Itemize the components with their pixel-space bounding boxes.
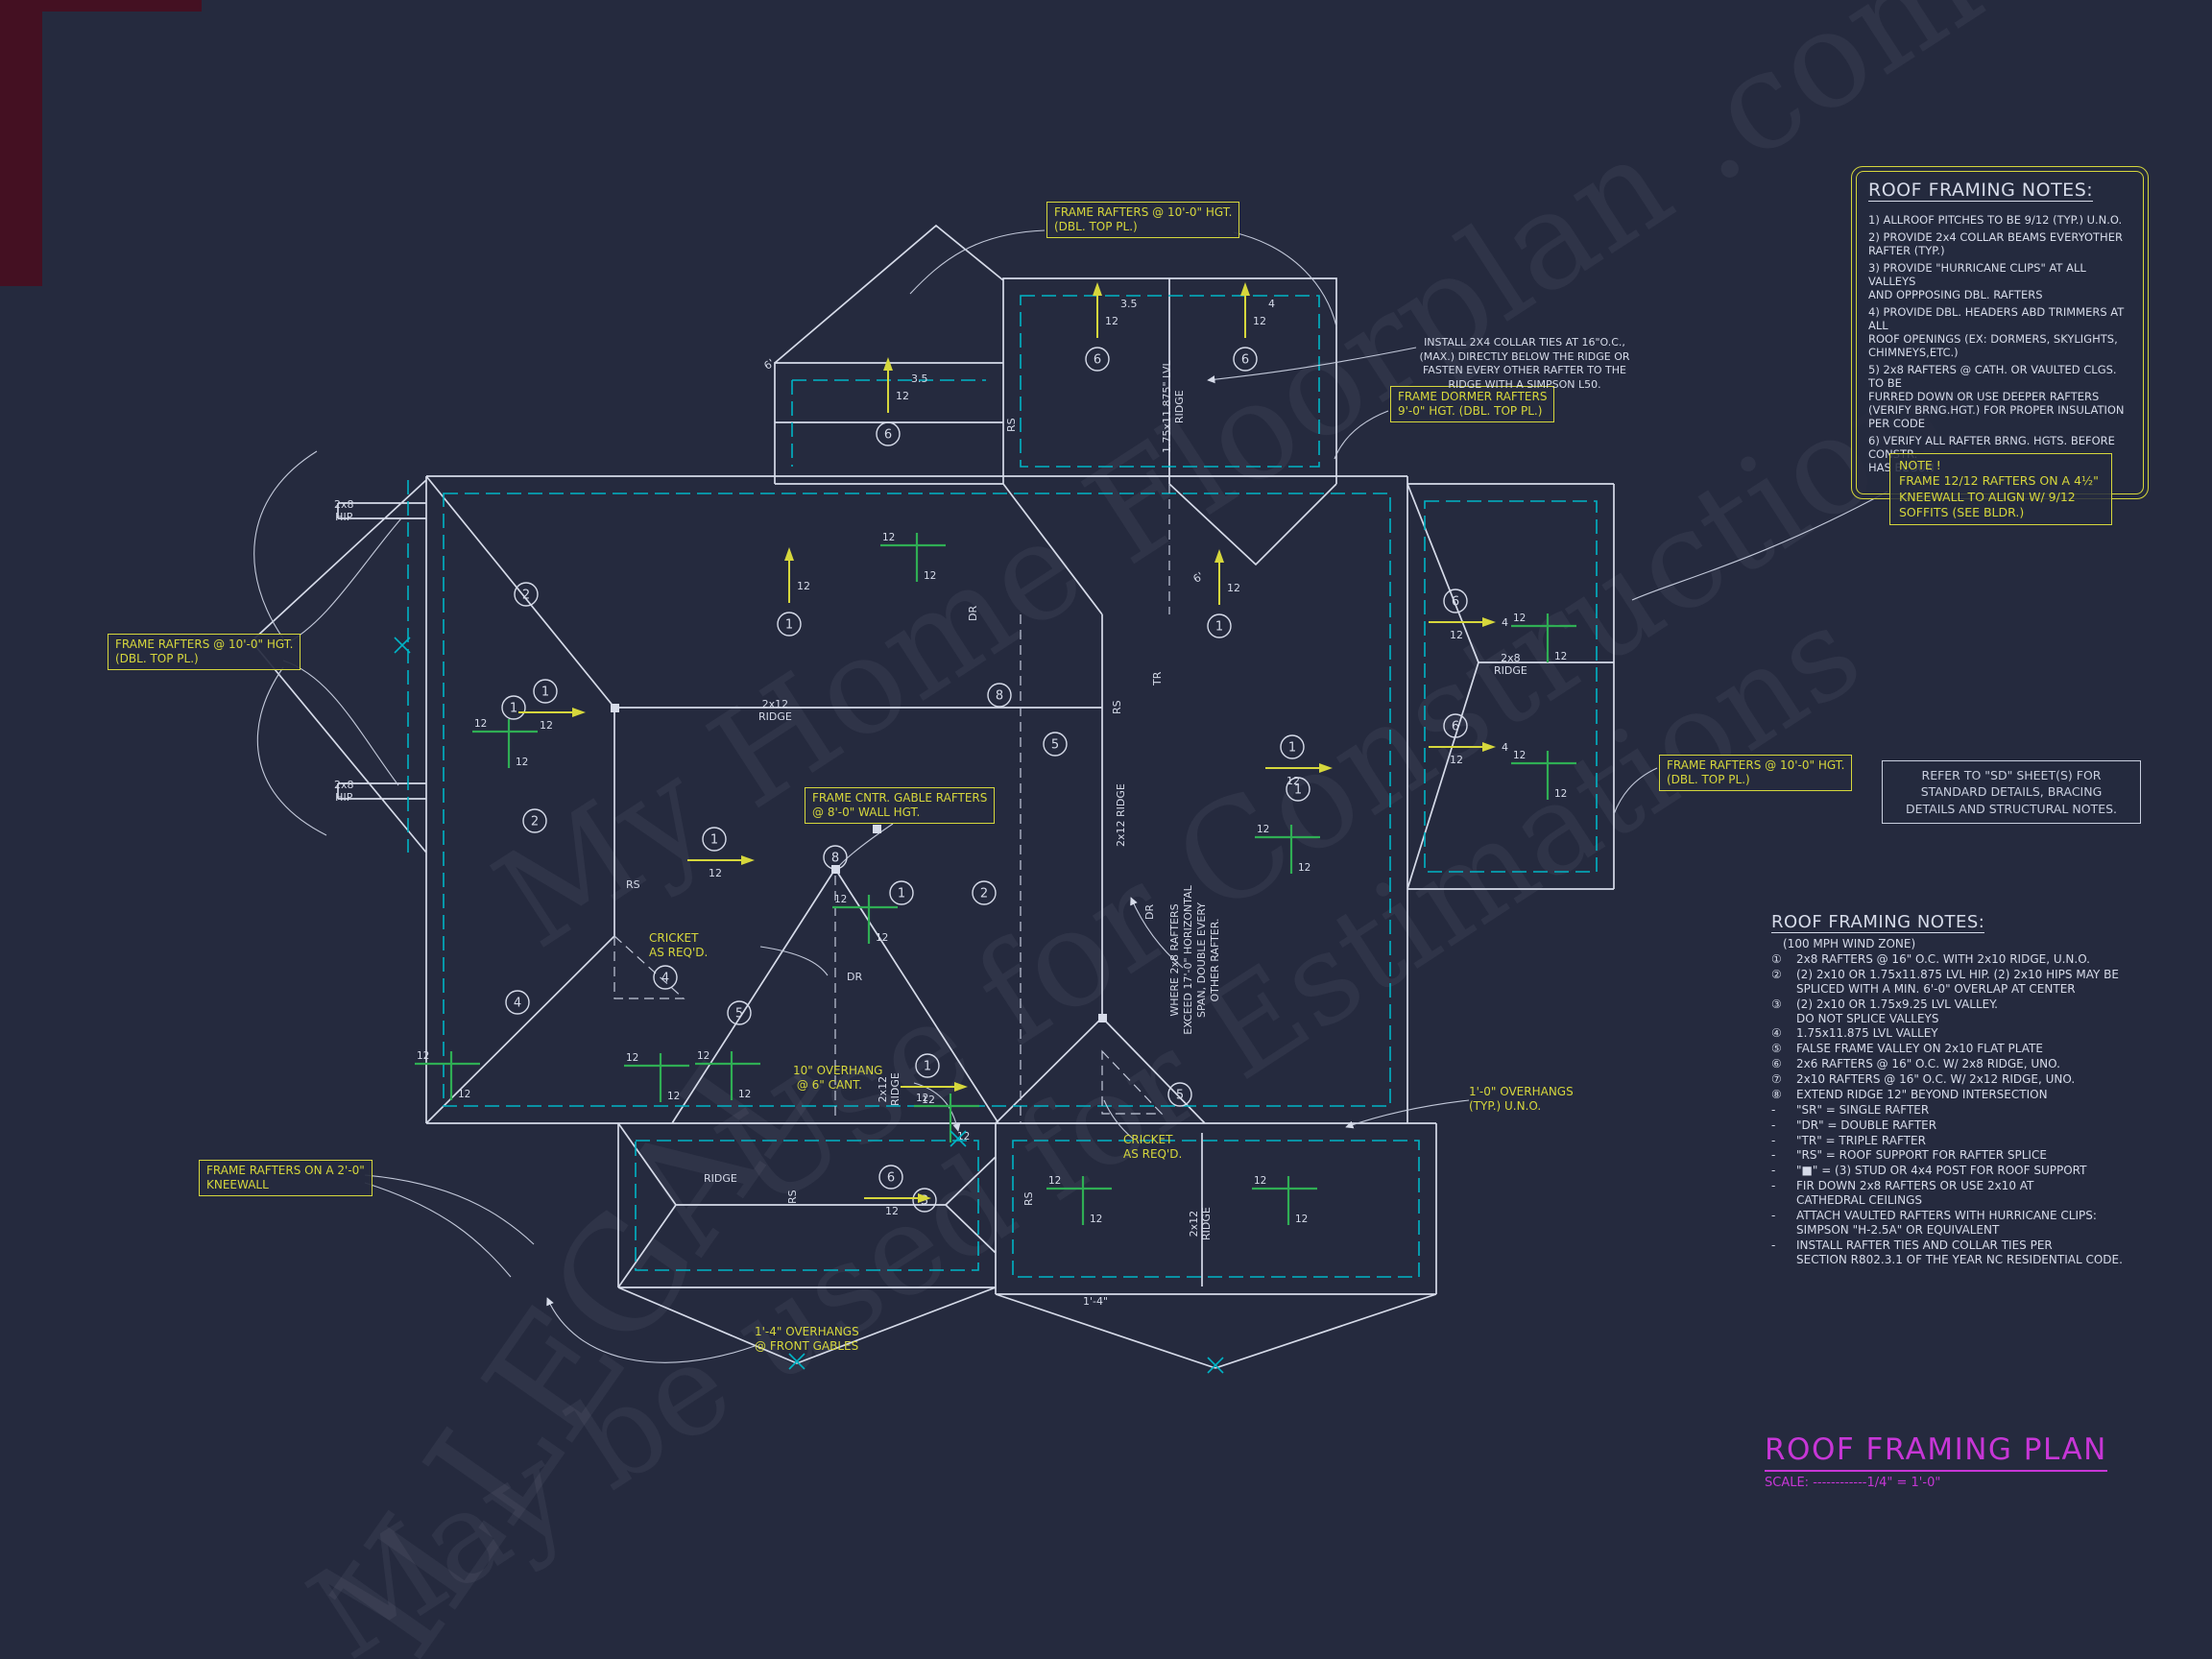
pitch-label: 3.5 — [911, 373, 928, 385]
callout-number: 1 — [785, 618, 793, 633]
title-block: ROOF FRAMING PLAN SCALE: ------------1/4… — [1765, 1432, 2107, 1490]
roof-framing-note: 3) PROVIDE "HURRICANE CLIPS" AT ALL VALL… — [1868, 261, 2131, 301]
pitch-cross-label: 12 — [1554, 788, 1567, 800]
pitch-arrowhead — [954, 1082, 968, 1092]
callout-number: 4 — [514, 997, 521, 1011]
framing-note-text: "DR" = DOUBLE RAFTER — [1796, 1118, 1936, 1133]
roof-framing-note: 2) PROVIDE 2x4 COLLAR BEAMS EVERYOTHER R… — [1868, 230, 2131, 257]
roof-framing-note: 5) 2x8 RAFTERS @ CATH. OR VAULTED CLGS. … — [1868, 363, 2131, 430]
framing-note-bullet: - — [1771, 1164, 1796, 1178]
frame-rafters-right-label: FRAME RAFTERS @ 10'-0" HGT. (DBL. TOP PL… — [1659, 755, 1852, 791]
pitch-cross-label: 12 — [458, 1089, 470, 1100]
plan-annotation: RS — [626, 879, 640, 892]
pitch-label: 4 — [1502, 741, 1508, 754]
install-collar-ties-note: INSTALL 2X4 COLLAR TIES AT 16"O.C., (MAX… — [1394, 336, 1655, 392]
callout-number: 4 — [661, 972, 669, 986]
framing-note-text: "RS" = ROOF SUPPORT FOR RAFTER SPLICE — [1796, 1148, 2047, 1163]
callout-number: 2 — [531, 815, 539, 829]
pitch-cross-label: 12 — [667, 1091, 680, 1102]
framing-note-text: EXTEND RIDGE 12" BEYOND INTERSECTION — [1796, 1088, 2048, 1102]
framing-note-row: -ATTACH VAULTED RAFTERS WITH HURRICANE C… — [1771, 1209, 2184, 1238]
framing-note-bullet: - — [1771, 1103, 1796, 1118]
framing-note-row: -"DR" = DOUBLE RAFTER — [1771, 1118, 2184, 1133]
cricket-1-label: CRICKET AS REQ'D. — [649, 931, 708, 960]
plan-annotation: RS — [1023, 1191, 1036, 1206]
pitch-cross-label: 12 — [1513, 613, 1526, 624]
plan-annotation: DR — [847, 972, 862, 984]
callout-number: 2 — [980, 887, 988, 902]
framing-note-text: (2) 2x10 OR 1.75x11.875 LVL HIP. (2) 2x1… — [1796, 968, 2119, 997]
frame-rafters-kneewall-label: FRAME RAFTERS ON A 2'-0" KNEEWALL — [199, 1160, 373, 1196]
framing-note-row: -"TR" = TRIPLE RAFTER — [1771, 1134, 2184, 1148]
callout-number: 1 — [924, 1060, 931, 1074]
callout-number: 5 — [735, 1007, 743, 1022]
pitch-cross-label: 12 — [738, 1089, 751, 1100]
callout-number: 6 — [1452, 595, 1459, 610]
note1-box: NOTE ! FRAME 12/12 RAFTERS ON A 4½" KNEE… — [1889, 453, 2112, 525]
callout-number: 2 — [522, 589, 530, 603]
framing-note-bullet: ② — [1771, 968, 1796, 997]
pitch-label: 4 — [1502, 616, 1508, 629]
pitch-cross-label: 12 — [1254, 1175, 1266, 1187]
overhang-1-4-label: 1'-4" OVERHANGS @ FRONT GABLES — [755, 1325, 859, 1354]
framing-note-bullet: - — [1771, 1209, 1796, 1238]
pitch-cross-label: 12 — [474, 718, 487, 730]
framing-note-row: -"SR" = SINGLE RAFTER — [1771, 1103, 2184, 1118]
cricket-2-label: CRICKET AS REQ'D. — [1123, 1133, 1182, 1162]
framing-note-bullet: ⑥ — [1771, 1057, 1796, 1071]
overhang-wall-lines — [408, 296, 1597, 1277]
callout-number: 6 — [1241, 353, 1249, 368]
plan-annotation: DR — [1144, 904, 1157, 920]
framing-note-bullet: - — [1771, 1134, 1796, 1148]
leader-install-note — [1208, 348, 1416, 380]
plan-annotation: TR — [1152, 672, 1165, 685]
plan-annotation: 2x12 RIDGE — [1189, 1207, 1213, 1240]
framing-note-row: -FIR DOWN 2x8 RAFTERS OR USE 2x10 AT CAT… — [1771, 1179, 2184, 1208]
pitch-label: 12 — [1286, 775, 1300, 787]
plan-annotation: 1'-4" — [1083, 1296, 1108, 1309]
framing-note-text: ATTACH VAULTED RAFTERS WITH HURRICANE CL… — [1796, 1209, 2097, 1238]
callout-number: 5 — [1176, 1089, 1184, 1103]
framing-note-text: (2) 2x10 OR 1.75x9.25 LVL VALLEY. DO NOT… — [1796, 998, 1998, 1026]
pitch-cross-label: 12 — [1554, 651, 1567, 662]
callout-number: 1 — [898, 887, 905, 902]
sheet-scale: SCALE: ------------1/4" = 1'-0" — [1765, 1476, 2107, 1490]
callout-number: 6 — [884, 428, 892, 443]
roof-framing-note: 1) ALLROOF PITCHES TO BE 9/12 (TYP.) U.N… — [1868, 213, 2131, 227]
callout-number: 6 — [1452, 720, 1459, 734]
overhang-1-0-label: 1'-0" OVERHANGS (TYP.) U.N.O. — [1469, 1085, 1574, 1114]
pitch-arrowhead — [572, 708, 586, 717]
callout-number: 1 — [510, 702, 517, 716]
callout-number: 5 — [1051, 738, 1059, 753]
roof-framing-note: 4) PROVIDE DBL. HEADERS ABD TRIMMERS AT … — [1868, 305, 2131, 359]
framing-note-row: -"■" = (3) STUD OR 4x4 POST FOR ROOF SUP… — [1771, 1164, 2184, 1178]
plan-annotation: 2x8 HIP — [334, 780, 354, 804]
pitch-label: 12 — [797, 580, 810, 592]
plan-annotation: DR — [968, 606, 980, 621]
roof-framing-notes-items: 1) ALLROOF PITCHES TO BE 9/12 (TYP.) U.N… — [1868, 213, 2131, 474]
pitch-arrowhead — [883, 357, 893, 371]
roof-framing-notes-list: ROOF FRAMING NOTES: (100 MPH WIND ZONE) … — [1771, 912, 2184, 1267]
callout-number: 6 — [887, 1171, 895, 1186]
pitch-label: 12 — [896, 390, 909, 402]
pitch-arrowhead — [1482, 617, 1496, 627]
callout-number: 1 — [1215, 620, 1223, 635]
pitch-label: 12 — [540, 719, 553, 732]
plan-annotation: 1.75x11.875" LVL RIDGE — [1162, 360, 1186, 453]
pitch-label: 12 — [1450, 754, 1463, 766]
roof-framing-notes-list-title: ROOF FRAMING NOTES: — [1771, 912, 1984, 933]
roof-framing-notes-list-items: ①2x8 RAFTERS @ 16" O.C. WITH 2x10 RIDGE,… — [1771, 952, 2184, 1266]
pitch-arrowhead — [784, 547, 794, 561]
frame-rafters-top-label: FRAME RAFTERS @ 10'-0" HGT. (DBL. TOP PL… — [1046, 202, 1239, 238]
pitch-label: 3.5 — [1120, 298, 1138, 310]
roof-framing-plan-sheet: My Home Floorplan .comUse for Constructi… — [0, 0, 2212, 1659]
pitch-cross-label: 12 — [626, 1052, 638, 1064]
plan-annotation: 2x8 RIDGE — [1494, 653, 1527, 677]
framing-note-bullet: - — [1771, 1148, 1796, 1163]
pitch-cross-label: 12 — [876, 932, 888, 944]
callout-number: 6 — [1094, 353, 1101, 368]
framing-note-row: ⑤FALSE FRAME VALLEY ON 2x10 FLAT PLATE — [1771, 1042, 2184, 1056]
framing-note-text: 2x10 RAFTERS @ 16" O.C. W/ 2x12 RIDGE, U… — [1796, 1072, 2075, 1087]
callout-number: 1 — [541, 685, 549, 700]
wind-zone-subtitle: (100 MPH WIND ZONE) — [1783, 937, 2184, 950]
framing-note-bullet: - — [1771, 1179, 1796, 1208]
plan-annotation: RIDGE — [704, 1173, 737, 1186]
framing-note-text: 1.75x11.875 LVL VALLEY — [1796, 1026, 1938, 1041]
pitch-cross-label: 12 — [1257, 824, 1269, 835]
framing-note-text: 2x8 RAFTERS @ 16" O.C. WITH 2x10 RIDGE, … — [1796, 952, 2090, 967]
plan-annotation: 2x12 RIDGE — [758, 699, 792, 723]
framing-note-row: ④1.75x11.875 LVL VALLEY — [1771, 1026, 2184, 1041]
roof-framing-notes-box-inner: ROOF FRAMING NOTES: 1) ALLROOF PITCHES T… — [1856, 171, 2144, 494]
roof-framing-notes-box: ROOF FRAMING NOTES: 1) ALLROOF PITCHES T… — [1851, 166, 2149, 499]
post-square — [1098, 1014, 1107, 1022]
plan-annotation: RS — [1112, 700, 1124, 714]
framing-note-text: INSTALL RAFTER TIES AND COLLAR TIES PER … — [1796, 1238, 2123, 1267]
callout-number: 8 — [831, 852, 839, 866]
where-rafters-note: WHERE 2x8 RAFTERS EXCEED 17'-0" HORIZONT… — [1168, 885, 1222, 1035]
frame-cntr-gable-rafters-label: FRAME CNTR. GABLE RAFTERS @ 8'-0" WALL H… — [805, 787, 995, 824]
pitch-label: 12 — [709, 867, 722, 879]
framing-note-text: FALSE FRAME VALLEY ON 2x10 FLAT PLATE — [1796, 1042, 2043, 1056]
framing-note-bullet: ④ — [1771, 1026, 1796, 1041]
leader-overhang-1-4 — [547, 1298, 755, 1362]
framing-note-text: "■" = (3) STUD OR 4x4 POST FOR ROOF SUPP… — [1796, 1164, 2086, 1178]
framing-note-row: ②(2) 2x10 OR 1.75x11.875 LVL HIP. (2) 2x… — [1771, 968, 2184, 997]
pitch-arrowhead — [1214, 549, 1224, 563]
pitch-cross-label: 12 — [882, 532, 895, 543]
pitch-arrowhead — [1319, 763, 1333, 773]
framing-note-text: "TR" = TRIPLE RAFTER — [1796, 1134, 1926, 1148]
pitch-cross-label: 12 — [1295, 1214, 1308, 1225]
post-square — [611, 704, 619, 712]
pitch-label: 4 — [1268, 298, 1275, 310]
overhang-10in-label: 10" OVERHANG @ 6" CANT. — [793, 1064, 882, 1093]
callout-number: 8 — [996, 689, 1003, 704]
framing-note-row: ⑥2x6 RAFTERS @ 16" O.C. W/ 2x8 RIDGE, UN… — [1771, 1057, 2184, 1071]
post-square — [873, 825, 881, 833]
framing-note-bullet: ⑧ — [1771, 1088, 1796, 1102]
framing-note-row: ③(2) 2x10 OR 1.75x9.25 LVL VALLEY. DO NO… — [1771, 998, 2184, 1026]
pitch-label: 12 — [885, 1205, 899, 1217]
pitch-arrowhead — [1093, 282, 1102, 296]
pitch-cross-label: 12 — [924, 570, 936, 582]
pitch-cross-label: 12 — [1513, 750, 1526, 761]
refer-sd-sheets-note: REFER TO "SD" SHEET(S) FOR STANDARD DETA… — [1882, 760, 2141, 824]
framing-note-row: -INSTALL RAFTER TIES AND COLLAR TIES PER… — [1771, 1238, 2184, 1267]
sheet-title: ROOF FRAMING PLAN — [1765, 1432, 2107, 1472]
callout-number: 1 — [710, 833, 718, 848]
plan-annotation: 2x8 HIP — [334, 499, 354, 523]
pitch-label: 12 — [1105, 315, 1118, 327]
plan-annotation: RS — [787, 1190, 800, 1204]
pitch-arrowhead — [741, 855, 755, 865]
frame-rafters-left-label: FRAME RAFTERS @ 10'-0" HGT. (DBL. TOP PL… — [108, 634, 301, 670]
framing-note-row: ⑦2x10 RAFTERS @ 16" O.C. W/ 2x12 RIDGE, … — [1771, 1072, 2184, 1087]
pitch-cross-label: 12 — [1048, 1175, 1061, 1187]
framing-note-text: "SR" = SINGLE RAFTER — [1796, 1103, 1929, 1118]
framing-note-row: -"RS" = ROOF SUPPORT FOR RAFTER SPLICE — [1771, 1148, 2184, 1163]
framing-note-bullet: - — [1771, 1238, 1796, 1267]
pitch-cross-label: 12 — [1090, 1214, 1102, 1225]
framing-note-bullet: ① — [1771, 952, 1796, 967]
framing-note-bullet: ⑤ — [1771, 1042, 1796, 1056]
pitch-label: 12 — [1227, 582, 1240, 594]
pitch-cross-label: 12 — [697, 1050, 709, 1062]
pitch-cross-label: 12 — [417, 1050, 429, 1062]
pitch-cross-label: 12 — [834, 894, 847, 905]
pitch-arrowhead — [1240, 282, 1250, 296]
pitch-cross-label: 12 — [516, 757, 528, 768]
plan-annotation: 2x12 RIDGE — [1116, 783, 1128, 847]
callout-number: 1 — [1288, 741, 1296, 756]
pitch-cross-label: 12 — [1298, 862, 1310, 874]
plan-annotation: RS — [1006, 418, 1019, 432]
framing-note-bullet: ⑦ — [1771, 1072, 1796, 1087]
roof-framing-notes-title: ROOF FRAMING NOTES: — [1868, 180, 2093, 202]
pitch-label: 12 — [1450, 629, 1463, 641]
framing-note-row: ⑧EXTEND RIDGE 12" BEYOND INTERSECTION — [1771, 1088, 2184, 1102]
framing-note-row: ①2x8 RAFTERS @ 16" O.C. WITH 2x10 RIDGE,… — [1771, 952, 2184, 967]
pitch-arrowhead — [1482, 742, 1496, 752]
pitch-label: 12 — [1253, 315, 1266, 327]
framing-note-text: 2x6 RAFTERS @ 16" O.C. W/ 2x8 RIDGE, UNO… — [1796, 1057, 2060, 1071]
framing-note-bullet: ③ — [1771, 998, 1796, 1026]
framing-note-bullet: - — [1771, 1118, 1796, 1133]
framing-note-text: FIR DOWN 2x8 RAFTERS OR USE 2x10 AT CATH… — [1796, 1179, 2033, 1208]
pitch-cross-label: 12 — [916, 1093, 928, 1104]
